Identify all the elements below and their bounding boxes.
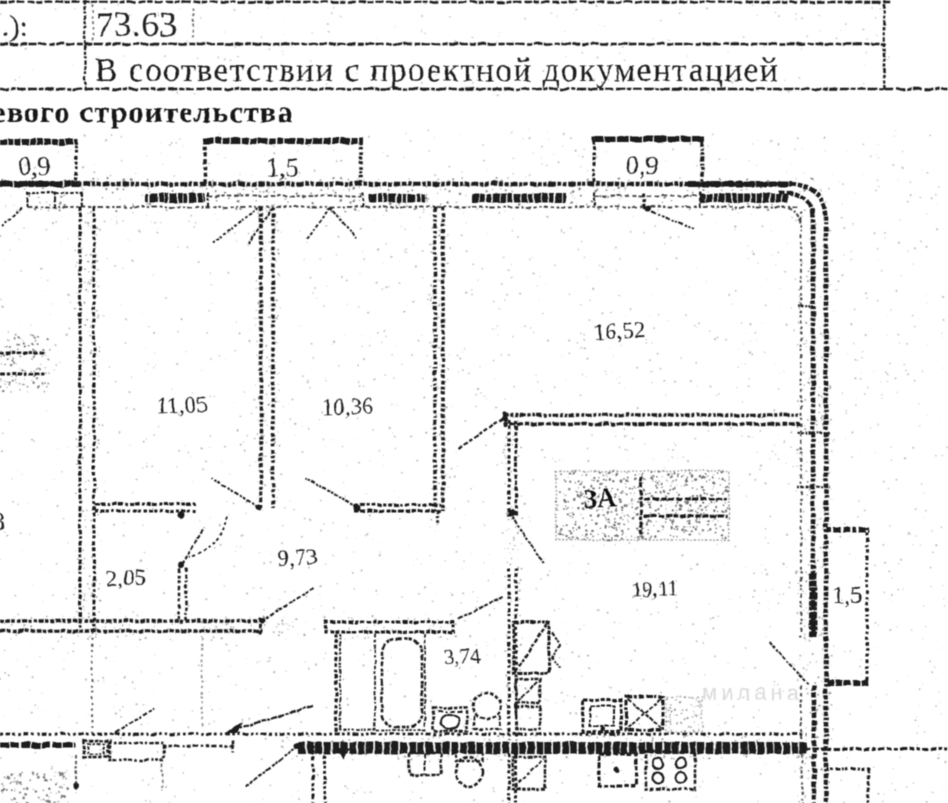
svg-text:16,52: 16,52 — [593, 317, 646, 345]
svg-text:1,5: 1,5 — [832, 583, 862, 609]
svg-text:9,73: 9,73 — [277, 544, 319, 571]
svg-text:2,05: 2,05 — [105, 565, 146, 591]
svg-text:3,74: 3,74 — [443, 644, 481, 669]
svg-text:милана: милана — [702, 680, 803, 705]
svg-text:73.63: 73.63 — [96, 5, 177, 44]
svg-text:10,36: 10,36 — [321, 393, 374, 420]
svg-text:19,11: 19,11 — [631, 576, 679, 602]
svg-text:11,05: 11,05 — [156, 391, 208, 419]
svg-text:евого строительства: евого строительства — [0, 96, 294, 129]
svg-text:0,9: 0,9 — [626, 151, 659, 180]
svg-text:.):: .): — [2, 10, 28, 43]
svg-text:1,5: 1,5 — [266, 153, 299, 182]
svg-text:0,9: 0,9 — [18, 152, 51, 181]
